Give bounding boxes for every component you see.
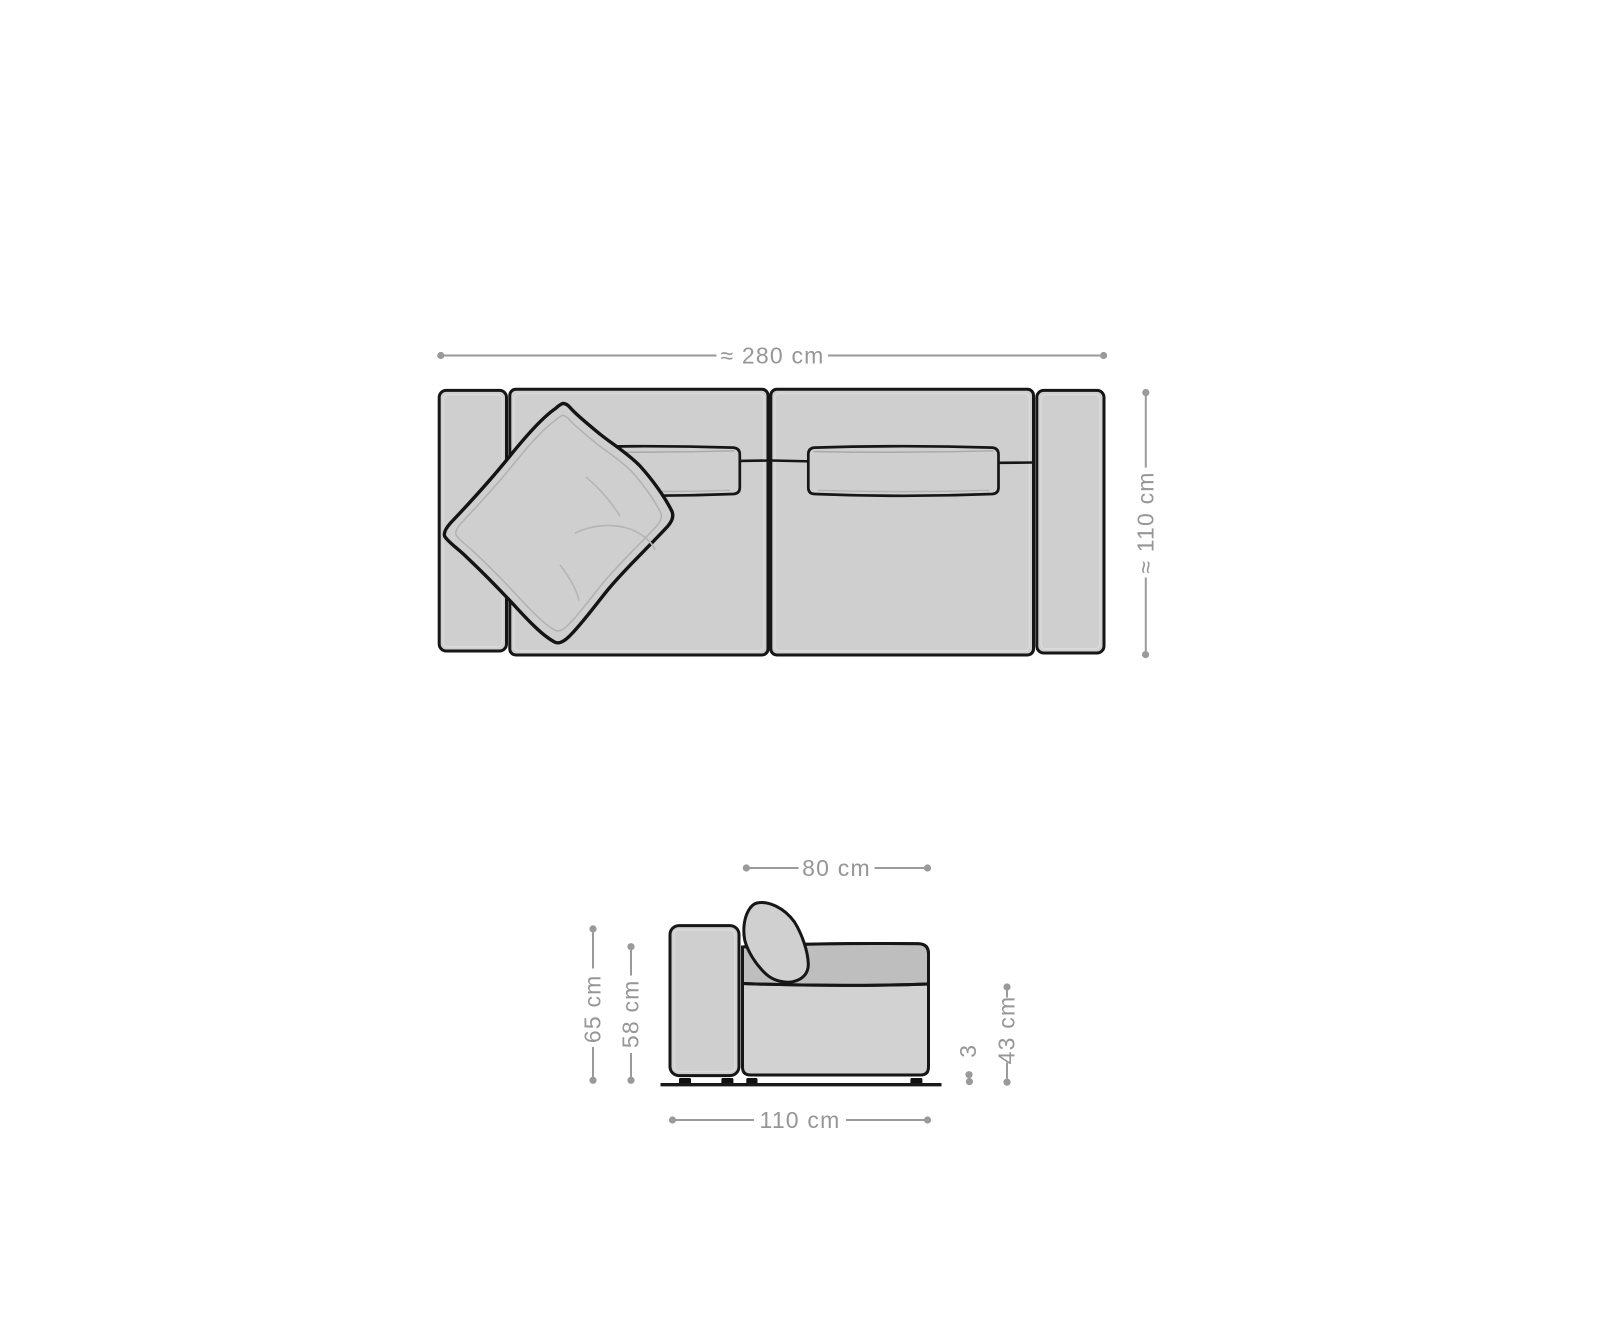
svg-text:≈ 110 cm: ≈ 110 cm bbox=[1133, 471, 1159, 573]
svg-text:110 cm: 110 cm bbox=[760, 1107, 841, 1133]
svg-text:58 cm: 58 cm bbox=[618, 979, 644, 1048]
svg-text:65 cm: 65 cm bbox=[580, 974, 606, 1043]
svg-text:43 cm: 43 cm bbox=[994, 996, 1020, 1065]
svg-text:≈ 280 cm: ≈ 280 cm bbox=[720, 343, 824, 369]
svg-text:3: 3 bbox=[955, 1044, 981, 1058]
svg-text:80 cm: 80 cm bbox=[802, 855, 871, 881]
